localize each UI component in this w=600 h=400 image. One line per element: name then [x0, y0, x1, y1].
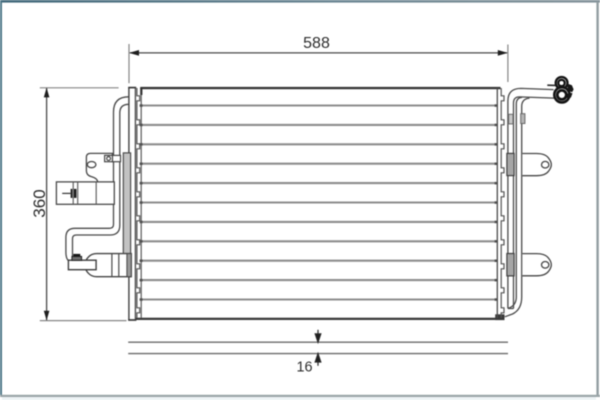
svg-text:588: 588 — [303, 35, 330, 52]
svg-text:16: 16 — [296, 360, 312, 376]
svg-text:360: 360 — [30, 189, 49, 217]
